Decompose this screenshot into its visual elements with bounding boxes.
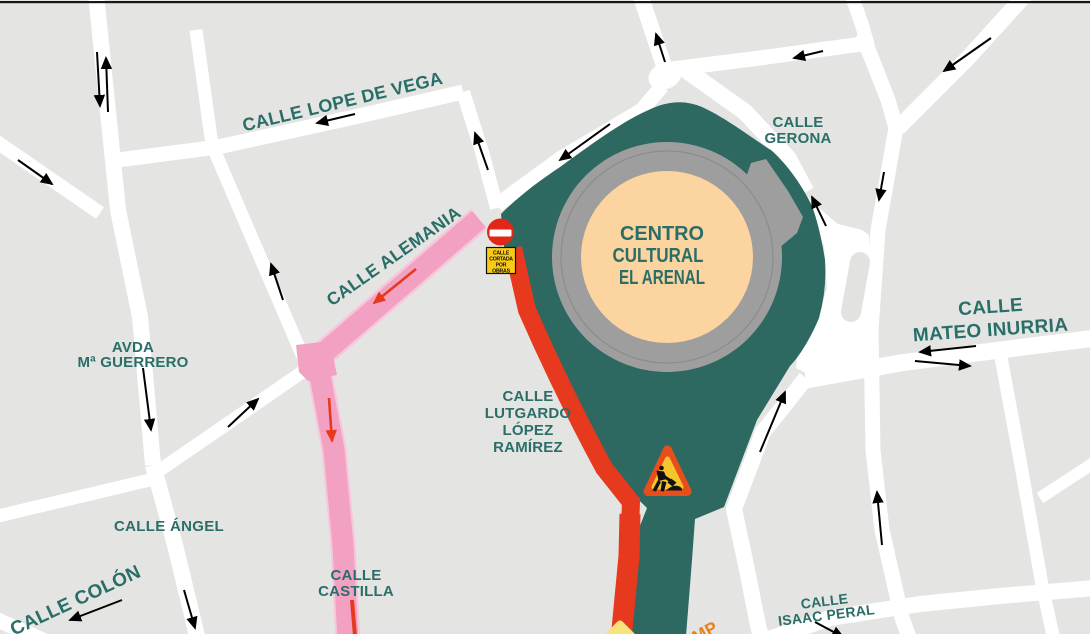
svg-text:CALLE: CALLE <box>503 388 554 405</box>
svg-text:CASTILLA: CASTILLA <box>318 583 394 600</box>
svg-text:CALLE: CALLE <box>773 114 824 131</box>
svg-text:EL ARENAL: EL ARENAL <box>619 267 705 289</box>
svg-text:LÓPEZ: LÓPEZ <box>502 421 553 439</box>
svg-text:CULTURAL: CULTURAL <box>613 245 704 267</box>
svg-text:GERONA: GERONA <box>764 130 831 147</box>
svg-text:RAMÍREZ: RAMÍREZ <box>493 439 563 456</box>
svg-text:CALLE: CALLE <box>331 567 382 584</box>
svg-text:CENTRO: CENTRO <box>620 223 704 245</box>
svg-text:LUTGARDO: LUTGARDO <box>485 405 572 422</box>
svg-text:Mª GUERRERO: Mª GUERRERO <box>77 354 188 371</box>
svg-text:OBRAS: OBRAS <box>492 268 510 274</box>
svg-text:CALLE ÁNGEL: CALLE ÁNGEL <box>114 518 224 535</box>
